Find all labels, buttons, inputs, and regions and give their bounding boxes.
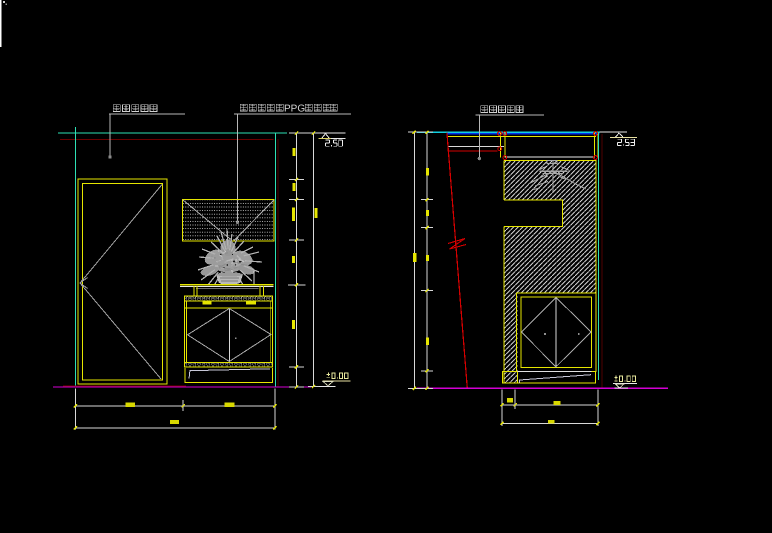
svg-text:PPG: PPG — [284, 104, 305, 115]
